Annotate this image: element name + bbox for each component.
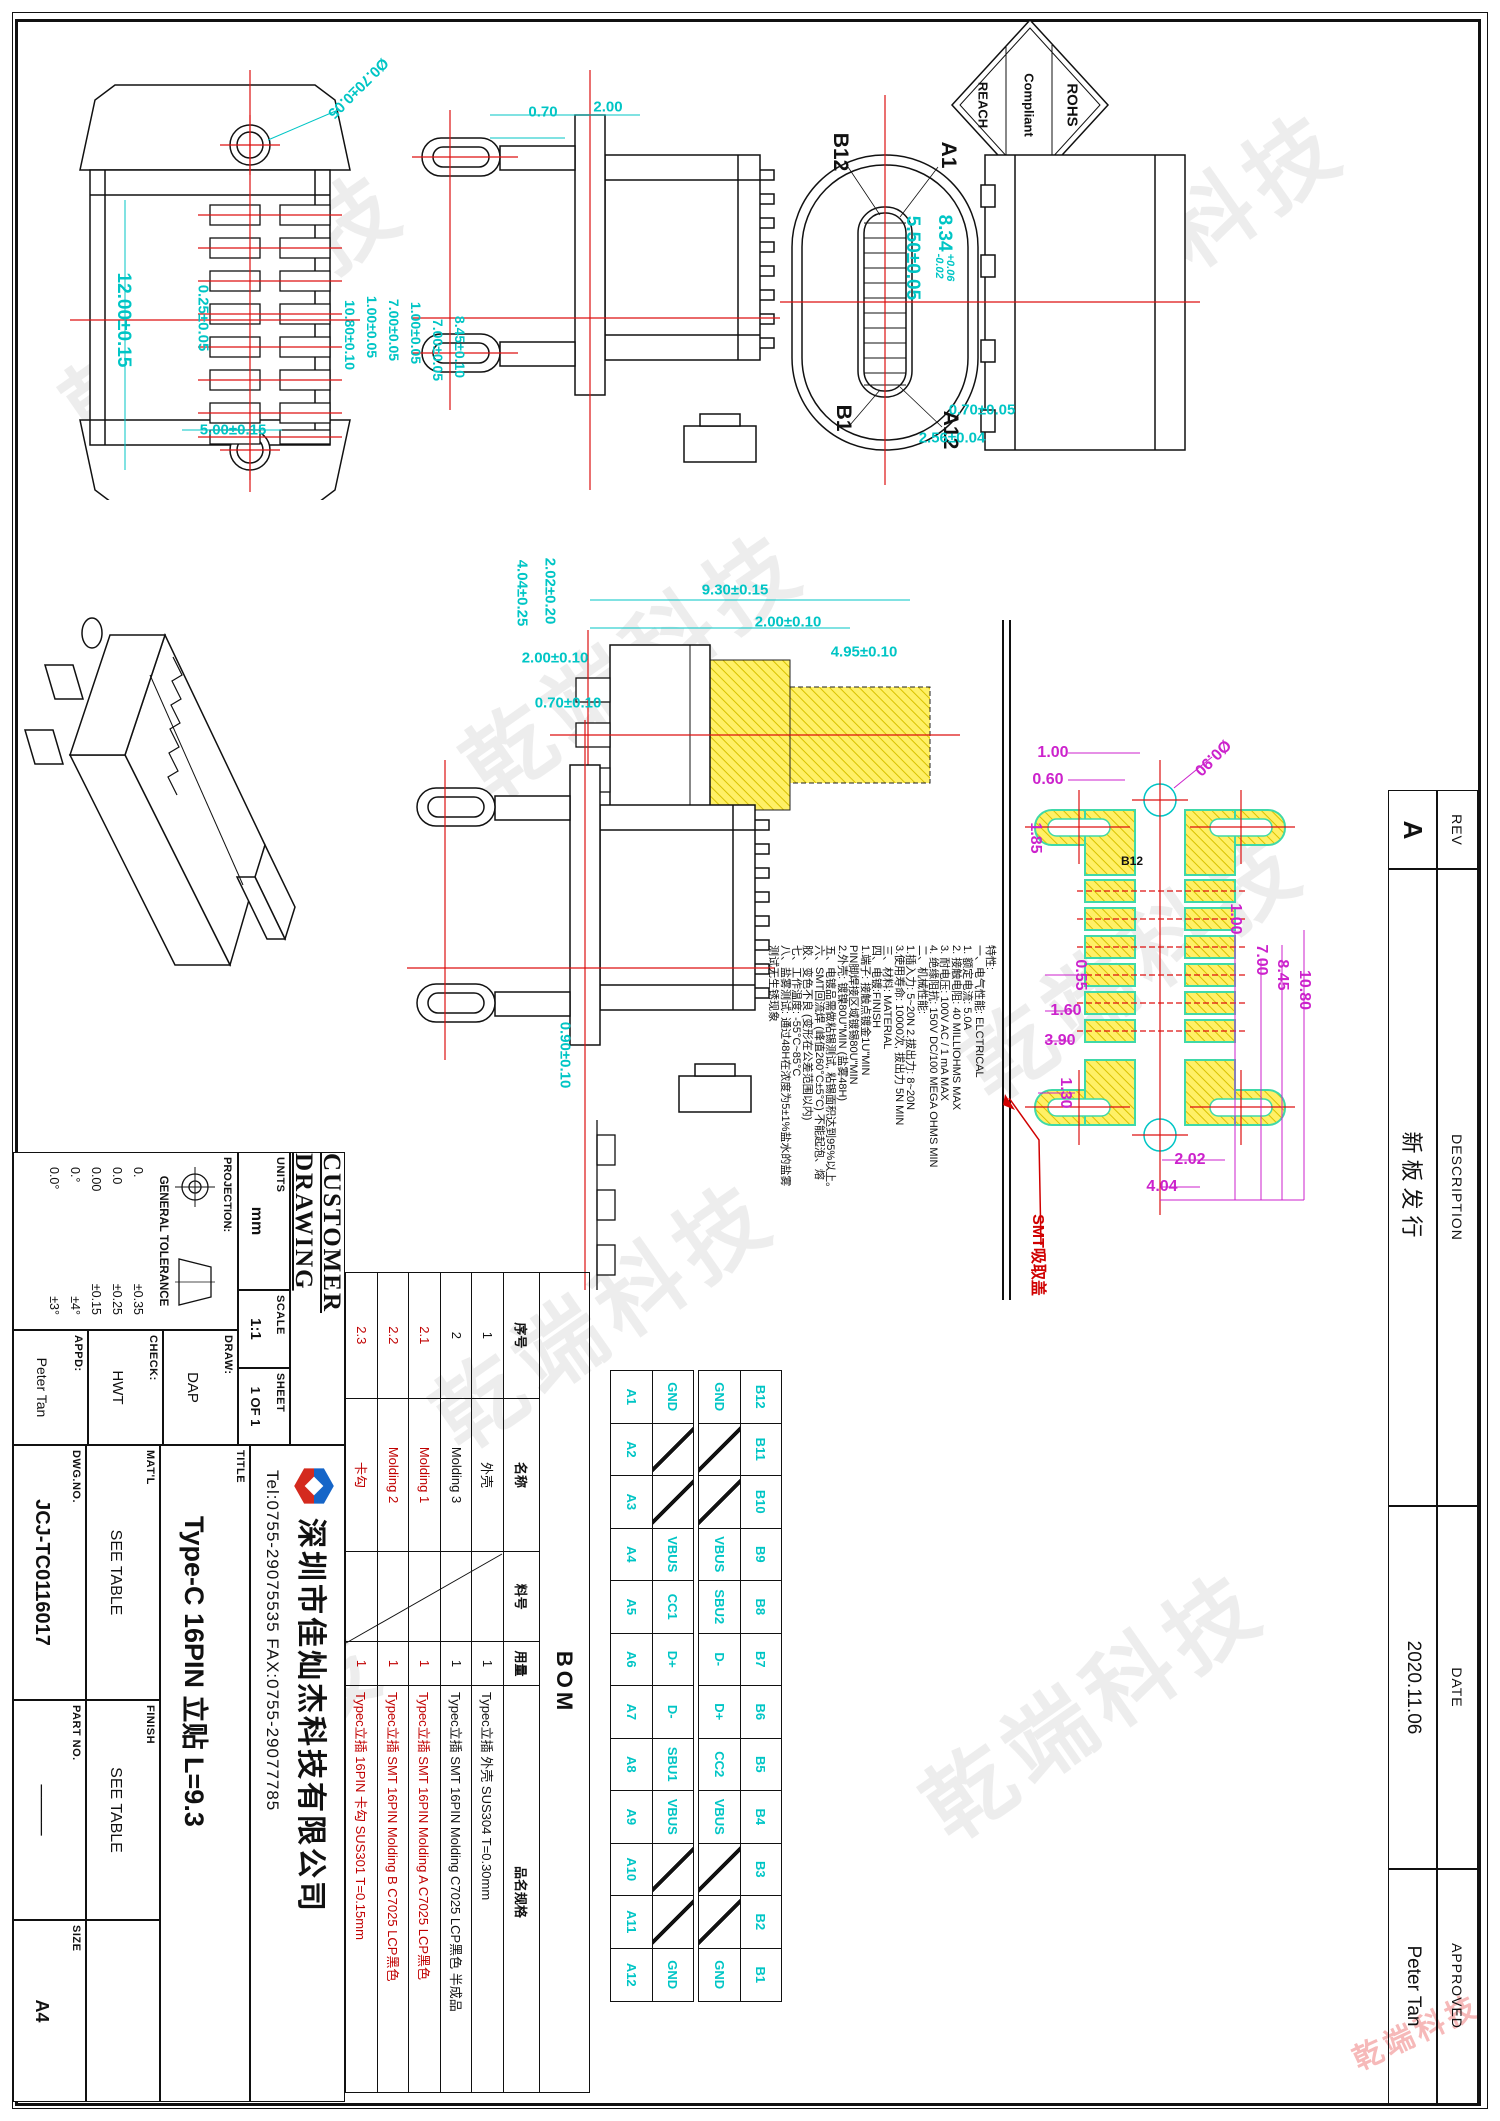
company-tel: Tel:0755-29075535 FAX:0755-29077785 (262, 1470, 282, 1811)
bom-spec: Typec立插 SMT 16PIN Molding A C7025 LCP黑色 (409, 1686, 441, 2092)
pin-cell: B5 (740, 1739, 781, 1792)
date-header: DATE (1436, 1505, 1478, 1870)
dim-width: 5.00±0.15 (200, 422, 267, 439)
notes-block: 特性:一、电气性能: ELCTRICAL1. 额定电流: 5.0A2. 接触电阻… (770, 945, 995, 1645)
dim-slot-width: 5.50±0.05 (901, 216, 923, 300)
sheet-cell: SHEET 1 OF 1 (238, 1368, 290, 1445)
signal-cell (699, 1896, 740, 1949)
bom-qty: 1 (409, 1642, 441, 1686)
pin-cell: A3 (611, 1476, 652, 1529)
pin-cell: B4 (740, 1791, 781, 1844)
note-line: 五、电镀品需做粘锡测试, 粘锡面积达到95%以上。 (824, 945, 835, 1645)
pin-cell: B8 (740, 1581, 781, 1634)
dim-pad-1_00: 1.00 (1037, 744, 1068, 762)
pin-row-a-pins: A1A2A3A4A5A6A7A8A9A10A11A12 (611, 1371, 652, 2001)
tolerance-row: 0.0°±3° (44, 1153, 65, 1329)
pin-cell: B12 (740, 1371, 781, 1424)
signal-cell (652, 1896, 693, 1949)
signal-cell: VBUS (699, 1529, 740, 1582)
description-header: DESCRIPTION (1436, 868, 1478, 1507)
bom-header: 名称 (503, 1399, 539, 1553)
bom-partno (440, 1552, 472, 1642)
bom-header-row: 序号 名称 料号 用量 品名规格 (503, 1273, 539, 2092)
dwg-no-cell: DWG.NO. JCJ-TC0116017 (13, 1445, 86, 1700)
pin-b1-label: B1 (831, 405, 855, 432)
bom-no: 1 (472, 1273, 504, 1399)
pin-cell: A11 (611, 1896, 652, 1949)
dim-edge: 2.56±0.04 (919, 430, 986, 447)
dim-4_04: 4.04 (1146, 1178, 1177, 1196)
bom-row: 2 Molding 3 1 Typec立插 SMT 16PIN Molding … (440, 1273, 472, 2092)
bom-spec: Typec立插 SMT 16PIN Molding B C7025 LCP黑色 (377, 1686, 409, 2092)
pin-cell: B3 (740, 1844, 781, 1897)
note-line: 三、材料: MATERIAL (881, 945, 892, 1645)
bom-name: 卡勾 (346, 1399, 378, 1553)
bom-name: Molding 2 (377, 1399, 409, 1553)
bom-partno (409, 1552, 441, 1642)
tolerance-row: 0.0±0.25 (107, 1153, 128, 1329)
dim-2_02-sect: 2.02±0.20 (542, 558, 559, 625)
signal-cell: CC2 (699, 1739, 740, 1792)
note-line: 七、工作温度: -55°C~85°C (790, 945, 801, 1645)
signal-cell (652, 1476, 693, 1529)
bom-name: Molding 3 (440, 1399, 472, 1553)
signal-cell (699, 1476, 740, 1529)
dim-7_00-front: 7.00±0.05 (386, 299, 402, 361)
screenshot-root: 乾端科技 乾端科技 乾端科技 乾端科技 乾端科技 乾端科技 乾端科技 乾端科技 … (0, 0, 1500, 2121)
bom-table: BOM 序号 名称 料号 用量 品名规格 1 外壳 1 Typec立插 外壳 S… (345, 1272, 590, 2093)
pin-table-a: GNDVBUSCC1D+D-SBU1VBUSGND A1A2A3A4A5A6A7… (610, 1370, 694, 2002)
dim-0_55: 0.55 (1071, 959, 1089, 990)
appd-cell: APPD: Peter Tan (13, 1330, 88, 1445)
dim-row-8_45: 8.45 (1273, 959, 1291, 990)
signal-cell: VBUS (652, 1791, 693, 1844)
signal-cell (652, 1424, 693, 1477)
note-line: 一、电气性能: ELCTRICAL (972, 945, 983, 1645)
company-name: 深圳市佳灿杰科技有限公司 (292, 1518, 336, 1914)
dim-9_30: 9.30±0.15 (702, 582, 769, 599)
dim-0_70-b: 0.70±0.10 (535, 695, 602, 712)
drawing-sheet: 乾端科技 乾端科技 乾端科技 乾端科技 乾端科技 乾端科技 乾端科技 乾端科技 … (0, 0, 1500, 2121)
pin-cell: B10 (740, 1476, 781, 1529)
signal-cell: SBU1 (652, 1739, 693, 1792)
rev-value: A (1388, 790, 1438, 870)
draw-cell: DRAW: DAP (163, 1330, 238, 1445)
note-line: 3. 耐电压: 100V AC / 1 mA MAX (938, 945, 949, 1645)
units-cell: UNITS mm (238, 1152, 290, 1290)
spare-cell (86, 1920, 160, 2102)
smt-cap-label: SMT吸取盖 (1028, 1214, 1052, 1296)
pin-a1-label: A1 (936, 142, 960, 169)
dim-pad-0_60: 0.60 (1032, 771, 1063, 789)
side-view-bottom (395, 680, 775, 1300)
dim-1_00-side: 1.00±0.05 (408, 302, 424, 364)
signal-cell: GND (699, 1949, 740, 2002)
projection-symbols-icon (173, 1157, 217, 1327)
bom-spec: Typec立插 外壳 SUS304 T=0.30mm (472, 1686, 504, 2092)
pad-b12-label: B12 (1121, 854, 1143, 868)
scale-cell: SCALE 1:1 (238, 1290, 290, 1368)
dim-7_00-side: 7.00±0.05 (430, 319, 446, 381)
bom-name: 外壳 (472, 1399, 504, 1553)
signal-cell: GND (652, 1949, 693, 2002)
customer-drawing-header: CUSTOMER DRAWING (290, 1152, 345, 1445)
dim-8_45: 8.45±0.10 (452, 316, 468, 378)
bom-row: 1 外壳 1 Typec立插 外壳 SUS304 T=0.30mm (472, 1273, 504, 2092)
signal-cell: D- (652, 1686, 693, 1739)
size-cell: SIZE A4 (13, 1920, 86, 2102)
description-value: 新板发行 (1388, 868, 1438, 1507)
bom-partno (472, 1552, 504, 1642)
signal-cell: GND (699, 1371, 740, 1424)
pin-b12-label: B12 (828, 133, 852, 172)
bom-qty: 1 (377, 1642, 409, 1686)
dim-row-7_00: 7.00 (1252, 944, 1270, 975)
note-line: 4. 绝缘阻抗: 150V DC/100 MEGA OHMS MIN (927, 945, 938, 1645)
tolerance-row: 0.±0.35 (128, 1153, 149, 1329)
dim-2_00: 2.00 (593, 99, 622, 116)
pin-cell: A2 (611, 1424, 652, 1477)
pin-cell: A4 (611, 1529, 652, 1582)
bom-partno (377, 1552, 409, 1642)
bom-row: 2.2 Molding 2 1 Typec立插 SMT 16PIN Moldin… (377, 1273, 409, 2092)
bom-no: 2.1 (409, 1273, 441, 1399)
note-line: 3.使用寿命: 10000次, 拔出力 5N MIN (892, 945, 903, 1645)
dwg-number: JCJ-TC0116017 (14, 1446, 69, 1699)
bom-qty: 1 (440, 1642, 472, 1686)
dim-shell-width: 8.34+0.06-0.02 (933, 215, 955, 282)
pin-cell: A12 (611, 1949, 652, 2002)
pin-cell: B2 (740, 1896, 781, 1949)
dim-4_04-sect: 4.04±0.25 (514, 560, 531, 627)
bom-row: 2.3 卡勾 1 Typec立插 16PIN 卡勾 SUS301 T=0.15m… (346, 1273, 378, 2092)
dim-length: 12.00±0.15 (112, 273, 134, 368)
dim-row-1_00: 1.00 (1226, 903, 1244, 934)
dim-1_00-front: 1.00±0.05 (364, 296, 380, 358)
dim-2_02: 2.02 (1174, 1151, 1205, 1169)
note-line: 胶、变色不良 (变形在公差范围以内) (801, 945, 812, 1645)
projection-tolerance-cell: PROJECTION: GENERAL TOLERANCE 0.±0.35 0.… (13, 1152, 238, 1330)
dim-0_70: 0.70 (528, 104, 557, 121)
iso-view (15, 515, 335, 1155)
approved-value: Peter Tan (1388, 1868, 1438, 2104)
bom-header: 序号 (503, 1273, 539, 1399)
matl-cell: MAT'L SEE TABLE (86, 1445, 160, 1700)
bom-no: 2 (440, 1273, 472, 1399)
note-line: 2.外壳: 镀镍80U"MIN (盐雾48H) (835, 945, 846, 1645)
note-line: 2. 接触电阻: 40 MILLIOHMS MAX (949, 945, 960, 1645)
bom-partno (346, 1552, 378, 1642)
bom-rows: 1 外壳 1 Typec立插 外壳 SUS304 T=0.30mm 2 Mold… (346, 1273, 504, 2092)
pin-cell: A5 (611, 1581, 652, 1634)
signal-cell: VBUS (699, 1791, 740, 1844)
drawing-title: Type-C 16PIN 立贴 L=9.3 (161, 1446, 233, 2101)
bom-spec: Typec立插 SMT 16PIN Molding C7025 LCP黑色 半成… (440, 1686, 472, 2092)
note-line: 四、电镀:FINISH (870, 945, 881, 1645)
bom-row: 2.1 Molding 1 1 Typec立插 SMT 16PIN Moldin… (409, 1273, 441, 2092)
bom-qty: 1 (472, 1642, 504, 1686)
pin-cell: A7 (611, 1686, 652, 1739)
signal-cell (699, 1424, 740, 1477)
tolerance-row: 0.00±0.15 (86, 1153, 107, 1329)
dim-1_30: 1.30 (1056, 1077, 1074, 1108)
pin-row-a-signals: GNDVBUSCC1D+D-SBU1VBUSGND (652, 1371, 693, 2001)
finish-cell: FINISH SEE TABLE (86, 1700, 160, 1920)
dim-0_90-b: 0.90±0.10 (557, 1022, 574, 1089)
note-line: 二、机械性能: (915, 945, 926, 1645)
note-line: 特性: (984, 945, 995, 1645)
dim-pin-offset: 0.25±0.05 (195, 285, 212, 352)
dim-tab: 0.70±0.05 (949, 402, 1016, 419)
part-no-cell: PART NO. ──── (13, 1700, 86, 1920)
tolerance-row: 0.°±4° (65, 1153, 86, 1329)
signal-cell: D- (699, 1634, 740, 1687)
pin-cell: A8 (611, 1739, 652, 1792)
signal-cell: SBU2 (699, 1581, 740, 1634)
pin-cell: A9 (611, 1791, 652, 1844)
title-cell: TITLE Type-C 16PIN 立贴 L=9.3 (160, 1445, 250, 2102)
dim-2_00-b: 2.00±0.10 (522, 650, 589, 667)
note-line: PIN脚焊接区域镀锡80U"MIN (847, 945, 858, 1645)
pin-cell: A6 (611, 1634, 652, 1687)
dim-row-10_80: 10.80 (1295, 970, 1313, 1010)
bom-header: 料号 (503, 1552, 539, 1642)
approved-header: APPROVED (1436, 1868, 1478, 2104)
bom-no: 2.2 (377, 1273, 409, 1399)
bom-header: 品名规格 (503, 1686, 539, 2092)
company-cell: 深圳市佳灿杰科技有限公司 Tel:0755-29075535 FAX:0755-… (250, 1445, 345, 2102)
bom-name: Molding 1 (409, 1399, 441, 1553)
note-line: 1.端子: 接触点镀金1U"MIN (858, 945, 869, 1645)
dim-2_00-sect: 2.00±0.10 (755, 614, 822, 631)
signal-cell: VBUS (652, 1529, 693, 1582)
signal-cell: D+ (699, 1686, 740, 1739)
pin-cell: A10 (611, 1844, 652, 1897)
note-line: 六、SMT回流焊 (峰值260°C±5°C) 不能起泡、熔 (813, 945, 824, 1645)
pin-cell: B9 (740, 1529, 781, 1582)
bom-title: BOM (539, 1273, 589, 2092)
signal-cell: D+ (652, 1634, 693, 1687)
bom-spec: Typec立插 16PIN 卡勾 SUS301 T=0.15mm (346, 1686, 378, 2092)
signal-cell (699, 1844, 740, 1897)
pin-table-b: B12B11B10B9B8B7B6B5B4B3B2B1 GNDVBUSSBU2D… (698, 1370, 782, 2002)
dim-pad-1_85: 1.85 (1026, 822, 1044, 853)
tolerance-rows: 0.±0.35 0.0±0.25 0.00±0.15 0.°±4° 0.0°±3… (44, 1153, 149, 1329)
pin-row-b-signals: GNDVBUSSBU2D-D+CC2VBUSGND (699, 1371, 740, 2001)
rev-header: REV (1436, 790, 1478, 870)
pin-cell: A1 (611, 1371, 652, 1424)
dim-3_90: 3.90 (1044, 1032, 1075, 1050)
check-cell: CHECK: HWT (88, 1330, 163, 1445)
bom-qty: 1 (346, 1642, 378, 1686)
pin-cell: B1 (740, 1949, 781, 2002)
bom-header: 用量 (503, 1642, 539, 1686)
date-value: 2020.11.06 (1388, 1505, 1438, 1870)
note-line: 1.插入力: 5~20N 2.拔出力: 8~20N (904, 945, 915, 1645)
pin-row-b-pins: B12B11B10B9B8B7B6B5B4B3B2B1 (740, 1371, 781, 2001)
pin-cell: B7 (740, 1634, 781, 1687)
signal-cell: GND (652, 1371, 693, 1424)
signal-cell: CC1 (652, 1581, 693, 1634)
note-line: 1. 额定电流: 5.0A (961, 945, 972, 1645)
dim-4_95: 4.95±0.10 (831, 644, 898, 661)
dim-1_60: 1.60 (1050, 1002, 1081, 1020)
pin-cell: B11 (740, 1424, 781, 1477)
company-logo-icon (292, 1464, 336, 1508)
signal-cell (652, 1844, 693, 1897)
pin-cell: B6 (740, 1686, 781, 1739)
bom-no: 2.3 (346, 1273, 378, 1399)
